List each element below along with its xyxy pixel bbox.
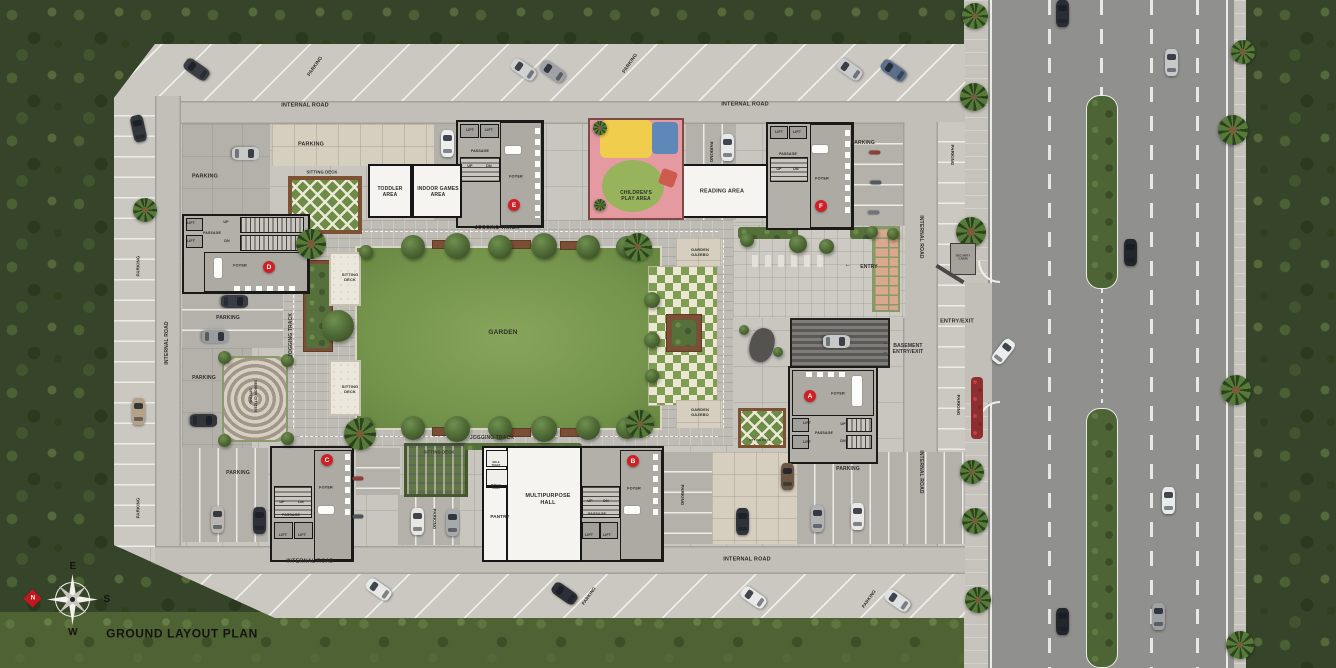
label-garden: GARDEN — [488, 329, 517, 337]
palm-tree-icon — [962, 3, 988, 29]
lane-marking — [1100, 0, 1103, 95]
label-up: UP — [776, 167, 781, 171]
foyer-furniture — [318, 506, 334, 514]
palm-tree-icon — [1218, 115, 1248, 145]
door-strip — [806, 372, 846, 377]
car — [851, 503, 864, 530]
car — [1056, 608, 1069, 635]
label-parking: PARKING — [135, 256, 141, 277]
tree-icon — [819, 239, 834, 254]
tree-icon — [218, 351, 231, 364]
label-internal-road: INTERNAL ROAD — [918, 215, 924, 258]
label-indoor-games-area: INDOOR GAMES AREA — [417, 186, 459, 199]
track-center-line — [723, 240, 724, 428]
tree-icon — [739, 325, 749, 335]
car — [253, 507, 266, 534]
label-parking: PARKING — [955, 395, 961, 416]
car — [736, 508, 749, 535]
label-lift: LIFT — [803, 440, 811, 444]
label-lift: LIFT — [298, 533, 306, 537]
bike-parking-lot — [356, 448, 400, 495]
label-passage: PASSAGE — [282, 513, 300, 517]
label-sitting-deck: SITTING DECK — [423, 449, 454, 454]
palm-tree-icon — [1226, 631, 1254, 659]
tree-icon — [401, 416, 425, 440]
label-internal-road: INTERNAL ROAD — [918, 450, 924, 493]
label-up: UP — [279, 500, 284, 504]
label-parking: PARKING — [851, 140, 875, 146]
parked-bike — [353, 476, 364, 480]
label-male-toilet: MALE TOILET — [492, 461, 501, 467]
label-internal-road: INTERNAL ROAD — [721, 102, 769, 109]
block-c-badge: C — [321, 454, 333, 466]
label-garden-gazebo: GARDEN GAZEBO — [691, 247, 709, 257]
label-basement-entry-exit: BASEMENT ENTRY/EXIT — [893, 343, 924, 356]
label-sitting-deck: SITTING DECK — [342, 384, 359, 394]
label-lift: LIFT — [279, 533, 287, 537]
car — [202, 330, 229, 343]
label-dn: DN — [793, 167, 798, 171]
perimeter-parking-left — [114, 96, 155, 548]
label-dn: DN — [224, 239, 229, 243]
car — [1165, 49, 1178, 76]
label-foyer: FOYER — [815, 177, 829, 182]
parked-bike — [871, 180, 882, 184]
lane-marking — [1196, 0, 1199, 668]
tree-icon — [401, 235, 425, 259]
road-median-green — [1086, 408, 1118, 668]
compass-e: E — [70, 561, 77, 574]
label-parking: PARKING — [226, 470, 250, 476]
label-internal-road: INTERNAL ROAD — [286, 559, 334, 566]
label-parking: PARKING — [949, 145, 955, 166]
tree-icon — [444, 416, 470, 442]
palm-tree-icon — [626, 410, 654, 438]
label-parking: PARKING — [298, 142, 324, 149]
label-foyer: FOYER — [319, 486, 333, 491]
palm-tree-icon — [965, 587, 991, 613]
label-sitting-deck: SITTING DECK — [342, 272, 359, 282]
ground-layout-plan: PARKINGPARKINGINTERNAL ROADINTERNAL ROAD… — [0, 0, 1336, 668]
label-parking: PARKING — [836, 466, 860, 472]
palm-tree-icon — [593, 121, 607, 135]
label-female-toilet: FEMALE TOILET — [491, 484, 501, 490]
car — [721, 134, 734, 161]
red-flower-hedge — [971, 377, 983, 439]
basement-arrow: ← — [883, 349, 889, 357]
perimeter-parking-top — [114, 44, 965, 101]
tree-icon — [322, 310, 354, 342]
palm-tree-icon — [960, 83, 988, 111]
road-edge-line — [1226, 0, 1228, 668]
label-foyer: FOYER — [509, 175, 523, 180]
staircase — [240, 235, 304, 251]
play-equipment-yellow — [600, 120, 652, 158]
label-jogging-track: JOGGING TRACK — [288, 313, 294, 357]
label-internal-road: INTERNAL ROAD — [164, 321, 170, 364]
palm-tree-icon — [1231, 40, 1255, 64]
parking-lot — [182, 124, 270, 220]
palm-tree-icon — [296, 229, 326, 259]
foyer-furniture — [852, 376, 862, 406]
label-lift: LIFT — [775, 130, 783, 134]
label-garden-gazebo: GARDEN GAZEBO — [691, 407, 709, 417]
parked-bike — [353, 514, 364, 518]
tree-icon — [488, 235, 512, 259]
parked-bike — [869, 210, 880, 214]
label-lift: LIFT — [803, 421, 811, 425]
label-dn: DN — [298, 500, 303, 504]
lane-marking — [1150, 0, 1153, 668]
compass-center — [70, 597, 75, 602]
label-foyer: FOYER — [233, 264, 247, 269]
door-strip — [535, 128, 540, 218]
tree-icon — [218, 434, 231, 447]
car — [441, 130, 454, 157]
speed-table — [752, 255, 826, 267]
label-entry-exit: ENTRY/EXIT — [940, 319, 974, 326]
parked-bike — [870, 150, 881, 154]
palm-tree-icon — [960, 460, 984, 484]
car — [781, 463, 794, 490]
tree-icon — [645, 369, 659, 383]
label-passage: PASSAGE — [471, 149, 489, 153]
tree-icon — [644, 332, 660, 348]
parking-lot — [797, 452, 965, 544]
label-sitting-deck: SITTING DECK — [306, 169, 337, 174]
door-strip — [845, 130, 850, 218]
door-strip — [345, 454, 350, 516]
label-lift: LIFT — [585, 533, 593, 537]
label-internal-road: INTERNAL ROAD — [281, 103, 329, 110]
label-lift: LIFT — [187, 221, 195, 225]
block-f-badge: F — [815, 200, 827, 212]
palm-tree-icon — [1221, 375, 1251, 405]
label-reading-area: READING AREA — [700, 189, 744, 196]
label-parking: PARKING — [679, 485, 685, 506]
tree-icon — [359, 245, 373, 259]
palm-tree-icon — [344, 418, 376, 450]
label-parking: PARKING — [192, 375, 216, 381]
car — [1162, 487, 1175, 514]
parking-lot — [664, 452, 712, 544]
label-pantry: PANTRY — [490, 514, 509, 520]
label-passage: PASSAGE — [815, 431, 833, 435]
label-multipurpose-hall: MULTIPURPOSE HALL — [525, 493, 570, 507]
plan-title: GROUND LAYOUT PLAN — [106, 627, 258, 642]
car — [811, 505, 824, 532]
gazebo-center-green — [672, 320, 696, 346]
label-senior-citizen-sitting: SENIOR CITIZEN SITTING — [248, 380, 257, 412]
block-d-badge: D — [263, 261, 275, 273]
tree-icon — [740, 233, 754, 247]
label-up: UP — [587, 499, 592, 503]
label-internal-road: INTERNAL ROAD — [723, 557, 771, 564]
car — [411, 508, 424, 535]
label-lift: LIFT — [187, 239, 195, 243]
car — [221, 295, 248, 308]
palm-tree-icon — [962, 508, 988, 534]
foyer-furniture — [505, 146, 521, 154]
label-jogging-track: JOGGING TRACK — [470, 435, 514, 441]
compass-n: N — [31, 595, 36, 603]
block-b-badge: B — [627, 455, 639, 467]
track-center-line — [300, 231, 718, 232]
label-lift: LIFT — [603, 533, 611, 537]
tree-icon — [531, 416, 557, 442]
label-up: UP — [223, 220, 228, 224]
palm-tree-icon — [624, 233, 652, 261]
label-parking: PARKING — [708, 142, 714, 163]
foyer-furniture — [812, 145, 828, 153]
label-lift: LIFT — [466, 128, 474, 132]
car — [132, 398, 145, 425]
door-strip — [653, 454, 658, 516]
label-jogging-track: JOGGING TRACK — [475, 225, 519, 231]
play-equipment-blue — [652, 122, 678, 154]
car — [211, 506, 224, 533]
palm-tree-icon — [594, 199, 606, 211]
block-a-badge: A — [804, 390, 816, 402]
tree-icon — [576, 235, 600, 259]
label-security-cabin: SECURITY CABIN — [956, 255, 971, 262]
sidewalk-right-of-road — [1234, 0, 1246, 668]
basement-arrow: ← — [883, 340, 889, 348]
label-lift: LIFT — [485, 128, 493, 132]
tree-icon — [866, 226, 878, 238]
label-foyer: FOYER — [831, 392, 845, 397]
staircase — [240, 217, 304, 233]
label-foyer: FOYER — [627, 487, 641, 492]
staircase — [846, 435, 872, 449]
compass-w: W — [68, 627, 78, 640]
label-entry: ENTRY — [860, 264, 878, 270]
car — [446, 509, 459, 536]
tree-icon — [644, 292, 660, 308]
foyer-furniture — [214, 258, 222, 278]
parking-lot — [272, 124, 434, 166]
car — [1124, 239, 1137, 266]
label-parking: PARKING — [192, 174, 218, 181]
lane-marking — [1048, 0, 1051, 668]
label-parking: PARKING — [135, 498, 141, 519]
label-passage: PASSAGE — [588, 512, 606, 516]
tree-icon — [281, 432, 294, 445]
label-sitting-deck: SITTING DECK — [749, 439, 771, 443]
staircase — [846, 418, 872, 432]
play-lawn-circle — [602, 160, 664, 212]
car — [232, 147, 259, 160]
central-garden — [355, 246, 662, 430]
staircase — [460, 157, 500, 182]
tree-icon — [887, 228, 899, 240]
label-parking: PARKING — [216, 315, 240, 321]
label-lift: LIFT — [793, 130, 801, 134]
door-strip — [234, 286, 300, 291]
label-parking: PARKING — [431, 509, 437, 530]
label-dn: DN — [603, 499, 608, 503]
tree-icon — [444, 233, 470, 259]
label-up: UP — [840, 422, 845, 426]
tree-icon — [531, 233, 557, 259]
palm-tree-icon — [133, 198, 157, 222]
lane-marking-dotted — [1101, 289, 1103, 408]
foyer-furniture — [624, 506, 640, 514]
label-dn: DN — [486, 164, 491, 168]
road-median-green — [1086, 95, 1118, 289]
label-childrens-play-area: CHILDREN'S PLAY AREA — [620, 190, 652, 203]
label-dn: DN — [840, 439, 845, 443]
label-toddler-area: TODDLER AREA — [377, 186, 402, 199]
car — [823, 335, 850, 348]
label-up: UP — [467, 164, 472, 168]
tree-icon — [576, 416, 600, 440]
block-e-badge: E — [508, 199, 520, 211]
car — [1152, 603, 1165, 630]
entry-arrow: ← — [844, 262, 851, 271]
car — [1056, 0, 1069, 27]
compass-s: S — [104, 594, 111, 607]
car — [190, 414, 217, 427]
label-passage: PASSAGE — [203, 231, 221, 235]
tree-icon — [789, 235, 807, 253]
tree-icon — [773, 347, 783, 357]
label-passage: PASSAGE — [779, 152, 797, 156]
